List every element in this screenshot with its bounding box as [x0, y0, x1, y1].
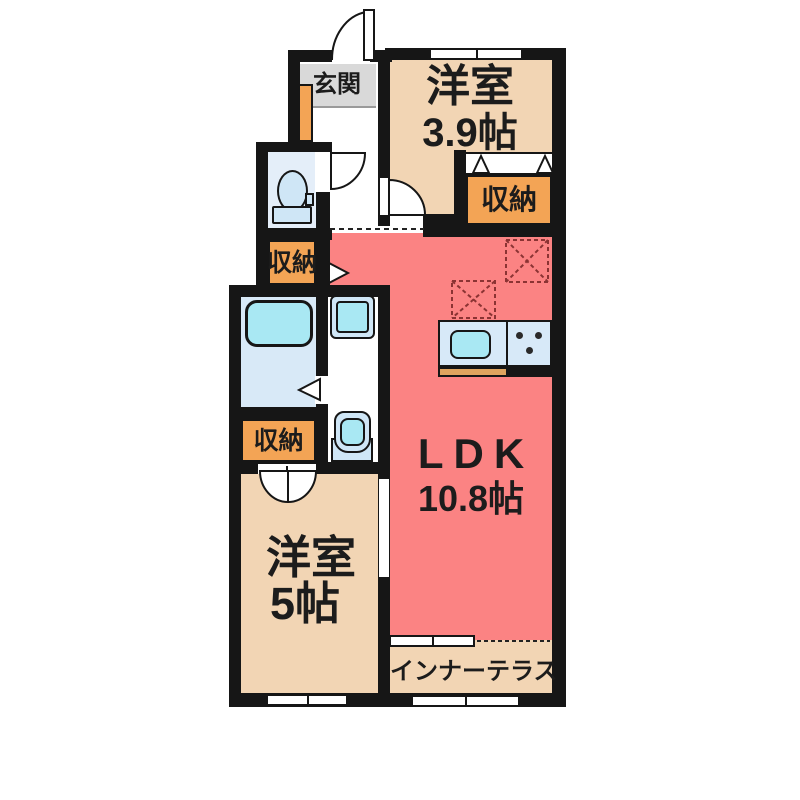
- wall-right: [552, 48, 566, 707]
- wall-entrance-left: [288, 50, 300, 152]
- washing-machine-drum: [336, 301, 369, 333]
- window-tick: [307, 696, 309, 704]
- wall-bathroom-bottom: [229, 407, 328, 419]
- entrance-door-arc: [332, 12, 366, 60]
- stove-burner: [526, 347, 533, 354]
- closet-door-tick: [286, 466, 288, 476]
- window-tick: [465, 697, 467, 705]
- storage-left-lower-label: 収納: [241, 428, 316, 454]
- toilet-door-gap: [315, 152, 331, 192]
- western-room-39-size: 3.9帖: [390, 112, 550, 154]
- wall-ldk-top: [454, 225, 566, 237]
- storage-left-upper-label: 収納: [266, 250, 318, 276]
- sliding-door-room5-ldk: [378, 478, 390, 578]
- ldk-name: LDK: [390, 432, 552, 476]
- closet-door-gap: [258, 462, 316, 474]
- window-terrace-bottom: [411, 695, 520, 707]
- kitchen-counter-edge-wood: [438, 367, 508, 377]
- bathtub: [245, 300, 313, 347]
- western-room-5-size: 5帖: [240, 580, 370, 627]
- kitchen-stove: [506, 320, 552, 367]
- entrance-label: 玄関: [299, 72, 375, 97]
- washbasin-sink: [340, 418, 365, 446]
- stove-burner: [535, 332, 542, 339]
- storage-top-right-doors: [466, 152, 552, 175]
- window-tick: [476, 50, 478, 58]
- toilet-flush-button: [305, 193, 314, 206]
- stove-burner: [516, 332, 523, 339]
- wall-room39-left: [378, 60, 390, 180]
- inner-terrace-label: インナーテラス: [390, 659, 552, 684]
- kitchen-sink: [450, 330, 491, 359]
- wall-left-lower: [229, 285, 241, 707]
- toilet-door-swing: [331, 153, 365, 189]
- wall-storage-tr-left: [454, 150, 466, 237]
- wall-room39-left-stub: [378, 214, 390, 226]
- ldk-size: 10.8帖: [390, 480, 552, 518]
- kitchen-counter-edge-dark: [506, 367, 552, 377]
- western-room-39-name: 洋室: [390, 64, 550, 110]
- window-tick: [432, 637, 434, 645]
- bathroom-door-gap: [315, 376, 329, 404]
- western-room-5-name: 洋室: [246, 534, 376, 581]
- toilet-tank: [272, 206, 312, 224]
- floor-plan: 玄関 洋室 3.9帖 収納 収納 収納 LDK 10.8帖 洋室 5帖 インナー…: [0, 0, 800, 800]
- sliding-window-ldk-terrace: [389, 635, 475, 647]
- storage-top-right-label: 収納: [466, 185, 552, 214]
- window-room5-bottom: [266, 694, 348, 706]
- window-room39-top: [429, 48, 523, 60]
